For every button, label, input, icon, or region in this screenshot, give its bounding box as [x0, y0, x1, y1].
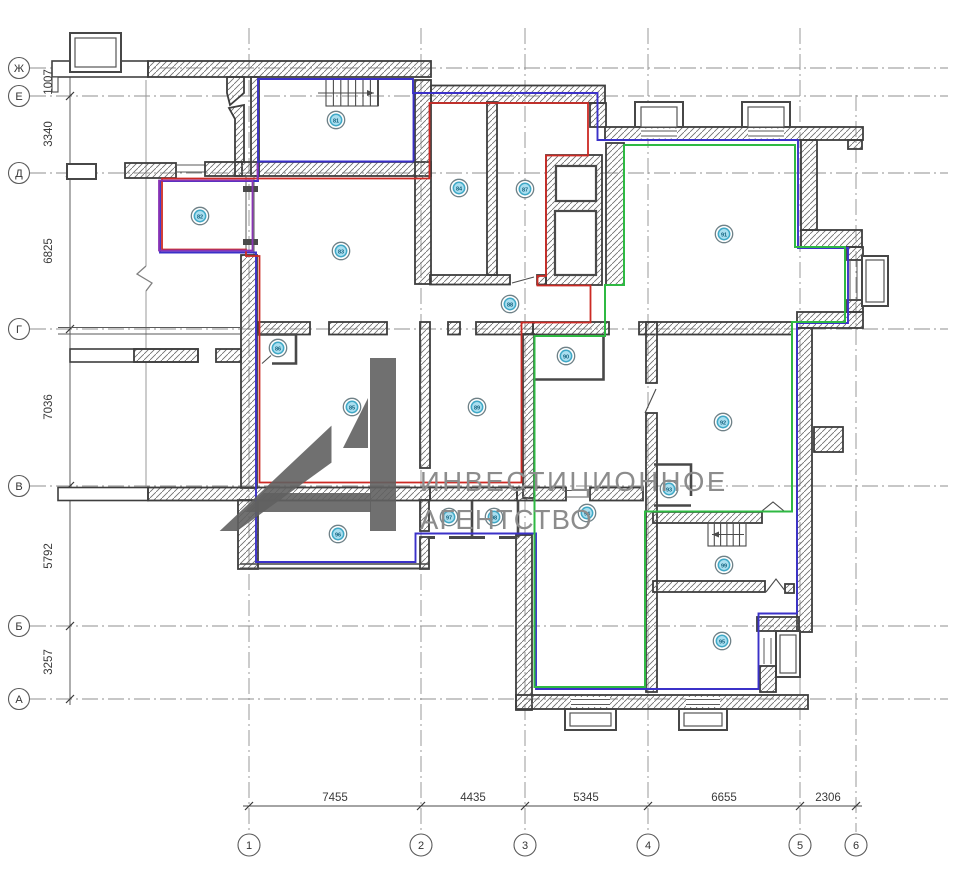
svg-text:82: 82	[197, 215, 203, 221]
svg-text:84: 84	[456, 187, 463, 193]
svg-text:81: 81	[333, 119, 339, 125]
svg-text:96: 96	[335, 533, 341, 539]
svg-text:4: 4	[645, 840, 651, 852]
svg-text:Г: Г	[16, 324, 22, 336]
svg-text:85: 85	[349, 406, 355, 412]
svg-text:83: 83	[338, 250, 344, 256]
svg-text:95: 95	[719, 640, 725, 646]
svg-text:В: В	[15, 481, 22, 493]
svg-text:4435: 4435	[460, 792, 486, 804]
svg-text:92: 92	[720, 421, 726, 427]
svg-text:6: 6	[853, 840, 859, 852]
svg-text:5: 5	[797, 840, 803, 852]
svg-text:99: 99	[721, 564, 727, 570]
svg-text:3340: 3340	[43, 121, 55, 147]
svg-text:7036: 7036	[43, 394, 55, 420]
svg-text:91: 91	[721, 233, 727, 239]
svg-text:2306: 2306	[815, 792, 841, 804]
svg-text:90: 90	[563, 355, 569, 361]
svg-text:Ж: Ж	[14, 63, 24, 75]
svg-text:1: 1	[246, 840, 252, 852]
svg-text:89: 89	[474, 406, 480, 412]
svg-text:6825: 6825	[43, 238, 55, 264]
svg-text:Б: Б	[15, 621, 22, 633]
svg-text:88: 88	[507, 303, 513, 309]
svg-text:АГЕНТСТВО: АГЕНТСТВО	[420, 504, 593, 535]
svg-text:3: 3	[522, 840, 528, 852]
svg-text:6655: 6655	[711, 792, 737, 804]
svg-text:ИНВЕСТИЦИОННОЕ: ИНВЕСТИЦИОННОЕ	[420, 466, 728, 497]
svg-text:7455: 7455	[322, 792, 348, 804]
svg-text:3257: 3257	[43, 649, 55, 675]
svg-text:5792: 5792	[43, 543, 55, 569]
svg-text:5345: 5345	[573, 792, 599, 804]
svg-text:87: 87	[522, 188, 528, 194]
svg-text:86: 86	[275, 347, 281, 353]
svg-text:Е: Е	[15, 91, 22, 103]
svg-text:А: А	[15, 694, 23, 706]
svg-text:2: 2	[418, 840, 424, 852]
svg-text:Д: Д	[15, 168, 23, 180]
